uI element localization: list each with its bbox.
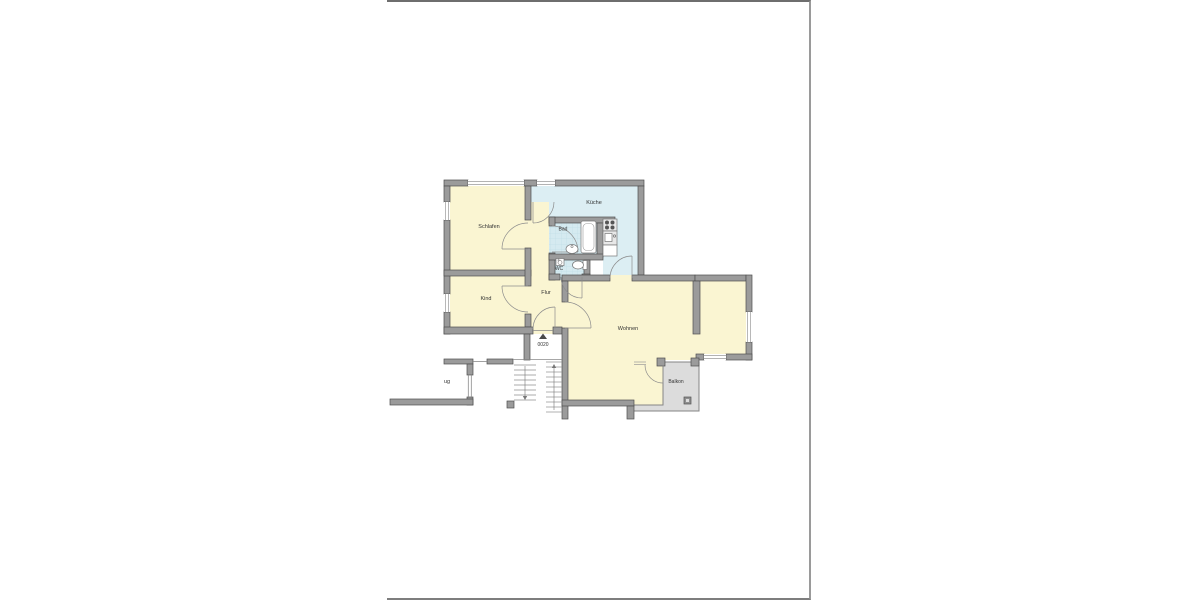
- toilet: [573, 261, 584, 269]
- kitchen-cabinet: [603, 245, 617, 256]
- balcony-post: [657, 358, 665, 366]
- staircase: [507, 360, 562, 413]
- wohnen-floor: [562, 275, 752, 405]
- aufzug-label: ug: [444, 379, 450, 385]
- bad-sink: [566, 245, 578, 254]
- kitchen-fixtures: [603, 219, 617, 256]
- kind-label: Kind: [480, 296, 491, 302]
- schlafen-label: Schlafen: [478, 224, 499, 230]
- flur-floor: [525, 280, 568, 334]
- entrance-arrow-icon: [539, 334, 547, 340]
- stair-arrow-up: [552, 364, 556, 368]
- entrance-marker: 0020: [537, 334, 548, 349]
- wohnen-label: Wohnen: [618, 326, 638, 332]
- flur-label: Flur: [541, 290, 551, 296]
- stove: [603, 219, 617, 231]
- floorplan-page: 0020 Schlafen Kind Küche Bad WC Flur Woh…: [387, 0, 811, 600]
- canvas: 0020 Schlafen Kind Küche Bad WC Flur Woh…: [0, 0, 1200, 600]
- bad-label: Bad: [559, 227, 568, 233]
- balcony-post: [691, 358, 699, 366]
- wc-label: WC: [555, 266, 564, 272]
- stair-post: [507, 401, 514, 408]
- balcony-drain-inner: [686, 399, 689, 402]
- balcony-details: [684, 397, 691, 404]
- kind-floor: [444, 270, 531, 334]
- unit-number-label: 0020: [537, 342, 548, 348]
- stair-arrow-down: [523, 396, 527, 400]
- balkon-label: Balkon: [668, 379, 684, 385]
- kueche-label: Küche: [586, 200, 602, 206]
- floorplan-drawing: 0020 Schlafen Kind Küche Bad WC Flur Woh…: [387, 2, 809, 598]
